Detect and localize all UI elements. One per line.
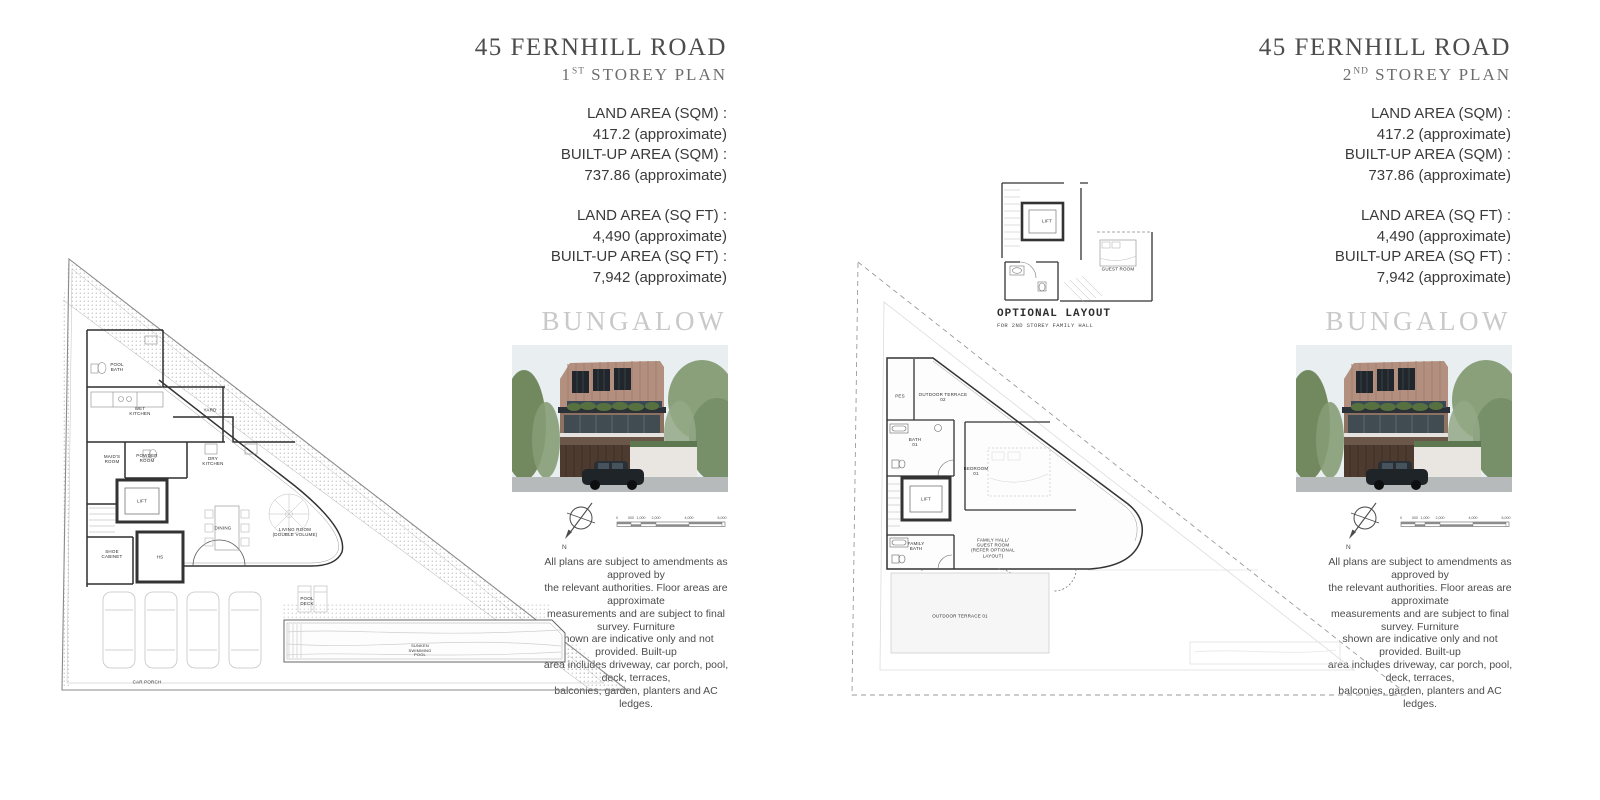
storey-subtitle: 2ND STOREY PLAN <box>1111 65 1511 85</box>
page-title: 45 FERNHILL ROAD <box>1111 34 1511 62</box>
room-label-pool-bath: POOL BATH <box>72 362 162 372</box>
staircase <box>89 508 115 532</box>
land-sqft-label: LAND AREA (SQ FT) : <box>1111 206 1511 227</box>
room-label-bedroom-01: BEDROOM 01 <box>931 466 1021 476</box>
scale-tick-3: 2,000 <box>652 516 661 520</box>
room-label-car-porch: CAR PORCH <box>102 679 192 684</box>
page-title: 45 FERNHILL ROAD <box>327 34 727 62</box>
right-panel-header: 45 FERNHILL ROAD 2ND STOREY PLAN <box>1111 34 1511 85</box>
land-sqm-label: LAND AREA (SQM) : <box>1111 104 1511 125</box>
storey-number: 1 <box>562 65 573 84</box>
room-label-pool: SUNKEN SWIMMING POOL <box>375 644 465 658</box>
room-label-dry-kitchen: DRY KITCHEN <box>168 456 258 466</box>
built-sqm-label: BUILT-UP AREA (SQM) : <box>1111 145 1511 166</box>
spacer <box>1111 186 1511 206</box>
storey-ordinal: ST <box>572 66 585 76</box>
scale-tick-5: 6,000 <box>1502 516 1511 520</box>
room-label-family-hall: FAMILY HALL/ GUEST ROOM (REFER OPTIONAL … <box>948 538 1038 559</box>
room-label-optional-lift: LIFT <box>1002 218 1092 223</box>
scale-tick-5: 6,000 <box>718 516 727 520</box>
storey-number: 2 <box>1343 65 1354 84</box>
land-sqft-value: 4,490 (approximate) <box>327 227 727 248</box>
left-panel-header: 45 FERNHILL ROAD 1ST STOREY PLAN <box>327 34 727 85</box>
storey-text: STOREY PLAN <box>1369 65 1511 84</box>
storey-ordinal: ND <box>1353 66 1369 76</box>
room-label-living-room: LIVING ROOM (DOUBLE VOLUME) <box>250 527 340 537</box>
scale-tick-4: 4,000 <box>1469 516 1478 520</box>
room-label-outdoor-terrace-02: OUTDOOR TERRACE 02 <box>898 392 988 402</box>
storey-subtitle: 1ST STOREY PLAN <box>327 65 727 85</box>
room-label-bath-01: BATH 01 <box>870 437 960 447</box>
land-sqft-label: LAND AREA (SQ FT) : <box>327 206 727 227</box>
built-sqm-value: 737.86 (approximate) <box>1111 166 1511 187</box>
floorplan-sheet: { "shared": { "bungalow_label": "BUNGALO… <box>0 0 1600 800</box>
room-label-lift: LIFT <box>97 498 187 503</box>
room-label-pool-deck: POOL DECK <box>262 596 352 606</box>
built-sqm-label: BUILT-UP AREA (SQM) : <box>327 145 727 166</box>
land-sqft-value: 4,490 (approximate) <box>1111 227 1511 248</box>
land-sqm-label: LAND AREA (SQM) : <box>327 104 727 125</box>
scale-tick-4: 4,000 <box>685 516 694 520</box>
room-label-lift: LIFT <box>881 496 971 501</box>
room-label-outdoor-terrace-01: OUTDOOR TERRACE 01 <box>915 613 1005 618</box>
room-label-yard: YARD <box>165 407 255 412</box>
first-storey-plan-drawing <box>55 252 640 700</box>
built-sqm-value: 737.86 (approximate) <box>327 166 727 187</box>
room-label-hs: HS <box>115 554 205 559</box>
land-sqm-value: 417.2 (approximate) <box>1111 125 1511 146</box>
scale-tick-3: 2,000 <box>1436 516 1445 520</box>
spacer <box>327 186 727 206</box>
car-porch-cars <box>103 592 261 668</box>
second-storey-plan-drawing <box>838 252 1423 700</box>
land-sqm-value: 417.2 (approximate) <box>327 125 727 146</box>
storey-text: STOREY PLAN <box>585 65 727 84</box>
entrance-double-doors <box>193 540 245 566</box>
